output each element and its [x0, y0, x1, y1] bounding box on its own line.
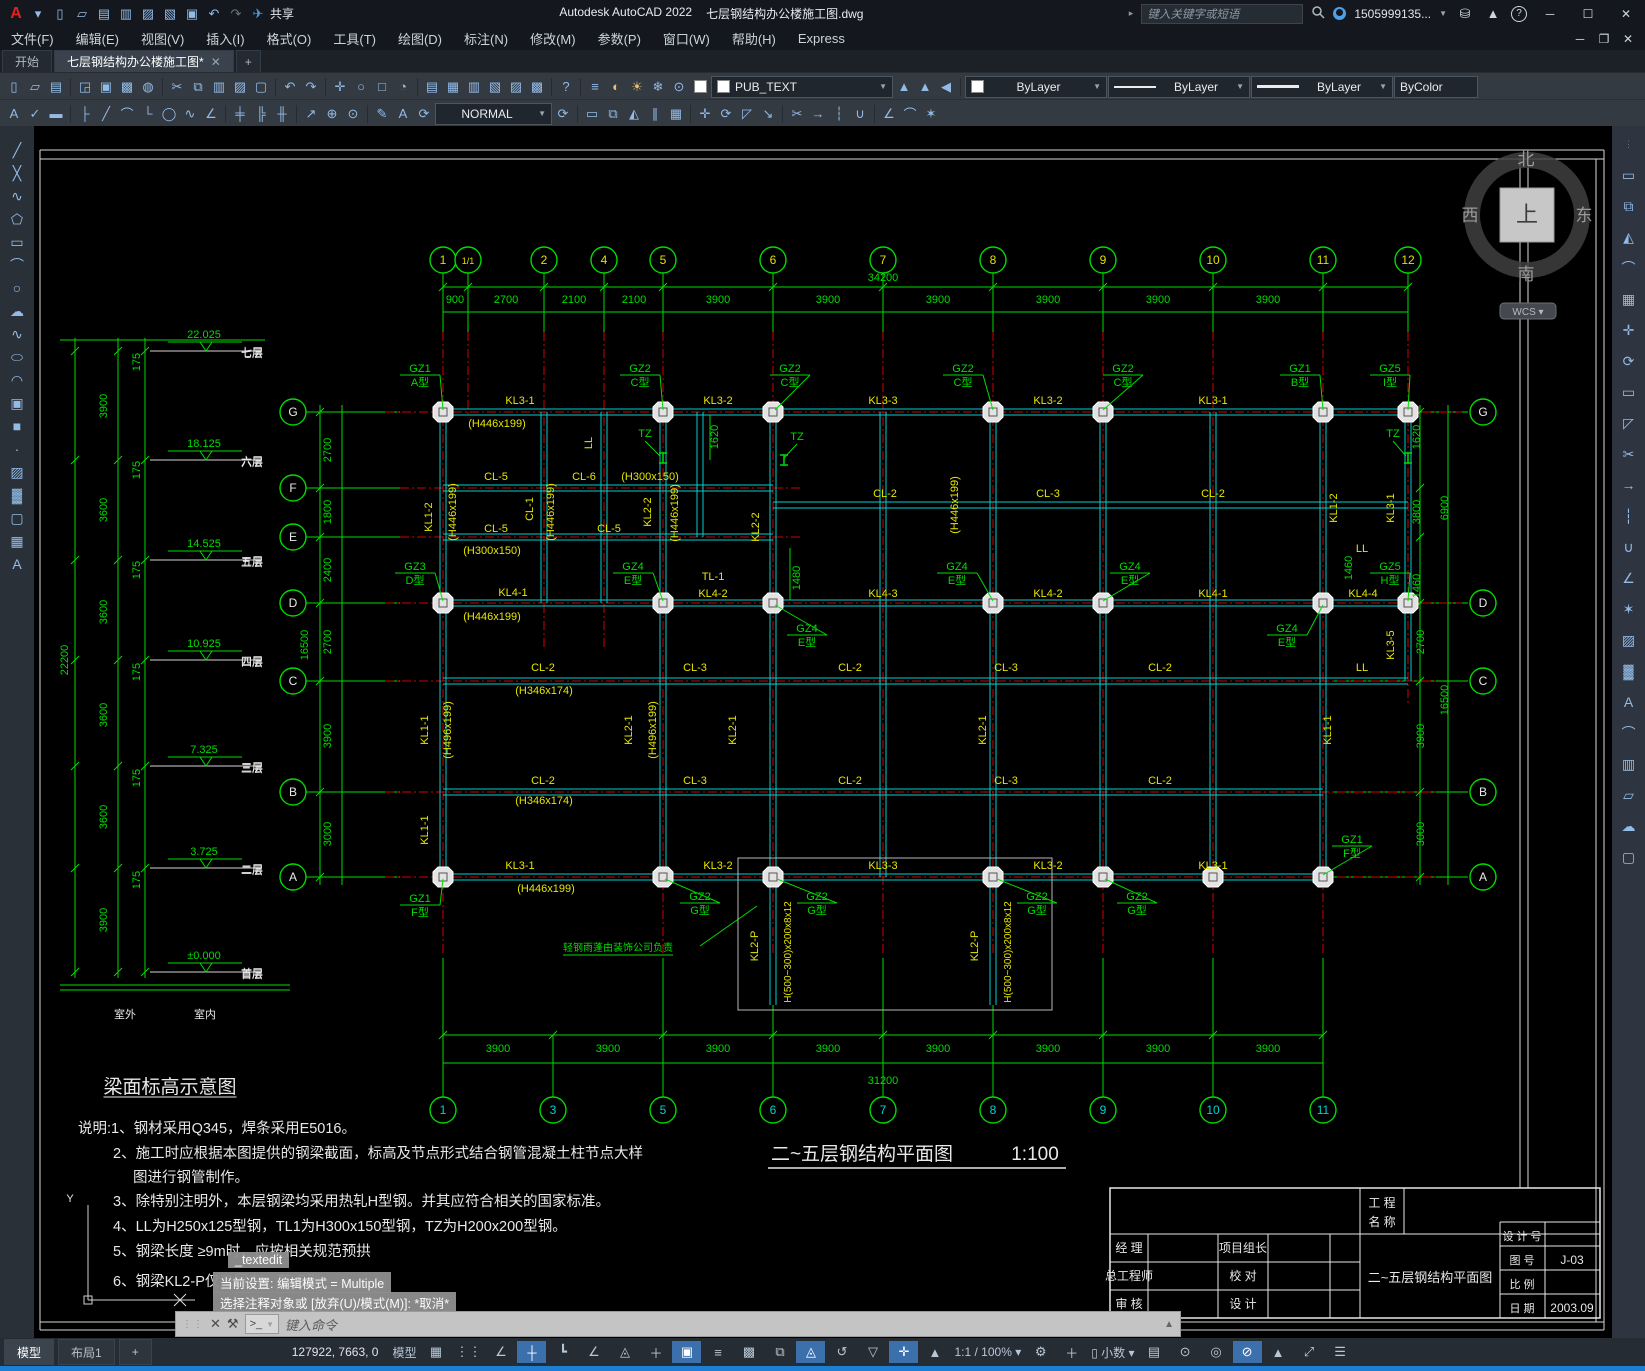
drawing-label: KL3-2 — [703, 860, 732, 872]
drawing-label: 3000 — [1415, 822, 1427, 846]
taskbar-accent — [0, 1366, 1645, 1371]
level-value: ±0.000 — [187, 950, 221, 962]
tb-leader: 项目组长 — [1219, 1241, 1267, 1255]
drawing-label: TZ — [638, 428, 652, 440]
drawing-label: (H300x150) — [463, 545, 520, 557]
drawing-label: (H446x199) — [545, 483, 557, 540]
status-performance-icon[interactable]: ▲ — [1264, 1341, 1293, 1363]
status-ducs-icon[interactable]: ↺ — [827, 1341, 856, 1363]
column-marker — [983, 867, 1003, 887]
column-tag: GZ4 — [622, 561, 643, 573]
column-marker — [433, 593, 453, 613]
column-tag: GZ5 — [1379, 363, 1400, 375]
level-value: 22.025 — [187, 329, 221, 341]
grid-bubble-label: 3 — [550, 1103, 557, 1117]
grid-bubble-label: 1 — [440, 1103, 447, 1117]
drawing-label: KL2-2 — [642, 497, 654, 526]
grid-bubble-label: 4 — [601, 253, 608, 267]
command-prompt-text: 选择注释对象或 [放弃(U)/模式(M)]: *取消* — [213, 1292, 456, 1313]
grid-bubble-label: 10 — [1206, 1103, 1220, 1117]
column-marker — [1093, 593, 1113, 613]
column-tag-type: F型 — [411, 905, 429, 919]
drawing-label: 3900 — [816, 294, 840, 306]
grid-bubble-label: 7 — [880, 1103, 887, 1117]
drawing-label: 1:100 — [1011, 1144, 1059, 1165]
status-dynamic-input-icon[interactable]: ┼ — [517, 1341, 546, 1363]
drawing-label: (H446x199) — [517, 883, 574, 895]
column-tag: GZ4 — [946, 561, 967, 573]
drawing-label: 3900 — [926, 1043, 950, 1055]
level-value: 7.325 — [190, 744, 218, 756]
drawing-label: KL4-4 — [1348, 588, 1377, 600]
column-tag-type: D型 — [406, 573, 425, 587]
units-button[interactable]: ▯ 小数 ▾ — [1088, 1341, 1137, 1363]
drawing-label: 二层 — [241, 864, 263, 877]
column-tag-type: A型 — [411, 375, 429, 389]
tb-design: 设 计 — [1229, 1297, 1256, 1311]
drawing-label: 1620 — [1411, 425, 1423, 449]
drawing-label: 3900 — [486, 1043, 510, 1055]
drawing-label: 2700 — [322, 438, 334, 462]
column-tag-type: G型 — [690, 903, 710, 917]
status-transparency-icon[interactable]: ▩ — [734, 1341, 763, 1363]
level-value: 10.925 — [187, 638, 221, 650]
drawing-label: 2700 — [1415, 630, 1427, 654]
command-history-button[interactable]: >_ ▼ — [245, 1314, 279, 1334]
grid-bubble-label: E — [289, 530, 297, 544]
drawing-label: LL — [1356, 543, 1368, 555]
viewcube-south: 南 — [1518, 265, 1535, 284]
drawing-label: KL3-1 — [1385, 493, 1397, 522]
drawing-label: KL3-3 — [868, 860, 897, 872]
drawing-label: 六层 — [241, 456, 263, 469]
drawing-label: KL3-3 — [868, 395, 897, 407]
grid-bubble-label: 2 — [541, 253, 548, 267]
tb-design-no: 设 计 号 — [1502, 1230, 1541, 1243]
grid-bubble-label: B — [289, 785, 297, 799]
column-tag-type: B型 — [1291, 375, 1309, 389]
status-isolate-icon[interactable]: ◎ — [1202, 1341, 1231, 1363]
drawing-label: 3900 — [926, 294, 950, 306]
grid-bubble-label: D — [1479, 596, 1488, 610]
drawing-label: 1480 — [791, 566, 803, 590]
grid-bubble-label: 6 — [770, 1103, 777, 1117]
column-marker — [1093, 402, 1113, 422]
drawing-label: 3900 — [98, 908, 110, 932]
status-snap-icon[interactable]: ⋮⋮ — [452, 1341, 484, 1363]
column-tag-type: C型 — [631, 375, 650, 389]
coordinates-readout: 127922, 7663, 0 — [292, 1345, 379, 1359]
column-tag-type: G型 — [807, 903, 827, 917]
status-customize-icon[interactable]: ☰ — [1326, 1341, 1355, 1363]
drawing-label: 3600 — [98, 600, 110, 624]
drawing-canvas[interactable]: GZ1A型GZ2C型GZ2C型GZ2C型GZ2C型GZ1B型GZ5I型GZ3D型… — [0, 0, 1645, 1371]
drawing-label: CL-3 — [683, 662, 707, 674]
grid-bubble-label: A — [1479, 870, 1487, 884]
status-ortho-icon[interactable]: ┗ — [548, 1341, 577, 1363]
column-tag: GZ2 — [952, 363, 973, 375]
drawing-label: KL2-1 — [623, 715, 635, 744]
grid-bubble-label: 11 — [1317, 253, 1330, 267]
drawing-label: (H496x199) — [442, 701, 454, 758]
autocad-window: GZ1A型GZ2C型GZ2C型GZ2C型GZ2C型GZ1B型GZ5I型GZ3D型… — [0, 0, 1645, 1371]
status-tab-layout1[interactable]: 布局1 — [58, 1339, 115, 1365]
column-marker — [653, 593, 673, 613]
drawing-label: CL-5 — [484, 471, 508, 483]
drawing-label: 175 — [131, 769, 143, 787]
level-value: 18.125 — [187, 438, 221, 450]
drawing-label: 1800 — [322, 500, 334, 524]
drawing-label: 说明:1、钢材采用Q345，焊条采用E5016。 — [78, 1120, 356, 1137]
column-tag: GZ2 — [1026, 891, 1047, 903]
status-hardware-icon[interactable]: ⊘ — [1233, 1341, 1262, 1363]
tb-date: 日 期 — [1509, 1302, 1534, 1315]
grid-bubble-label: G — [288, 405, 297, 419]
drawing-label: 轻钢雨蓬由装饰公司负责 — [563, 941, 673, 954]
tb-proof: 校 对 — [1229, 1268, 1256, 1283]
grid-bubble-label: 1 — [440, 253, 447, 267]
drawing-label: KL3-1 — [1198, 395, 1227, 407]
drawing-label: KL3-2 — [703, 395, 732, 407]
column-tag-type: G型 — [1127, 903, 1147, 917]
tb-drawing-name: 二~五层钢结构平面图 — [1368, 1270, 1493, 1285]
status-iso-icon[interactable]: ◬ — [610, 1341, 639, 1363]
grid-bubble-label: 11 — [1317, 1103, 1330, 1117]
tooltip-current-setting: 当前设置: 编辑模式 = Multiple — [213, 1272, 391, 1293]
status-quick-properties-icon[interactable]: ▤ — [1140, 1341, 1169, 1363]
drawing-label: 31200 — [868, 1075, 899, 1087]
grid-bubble-label: 9 — [1100, 1103, 1107, 1117]
drawing-label: (H346x174) — [515, 685, 572, 697]
grid-bubble-label: 10 — [1206, 253, 1220, 267]
tb-manager: 经 理 — [1115, 1241, 1142, 1255]
column-tag: GZ5 — [1379, 561, 1400, 573]
level-value: 3.725 — [190, 846, 218, 858]
drawing-label: 三层 — [241, 762, 263, 775]
grid-bubble-label: C — [1479, 674, 1488, 688]
drawing-label: KL4-2 — [698, 588, 727, 600]
status-lineweight-icon[interactable]: ≡ — [703, 1341, 732, 1363]
drawing-label: 3900 — [816, 1043, 840, 1055]
column-marker — [1093, 867, 1113, 887]
drawing-label: 34200 — [868, 272, 899, 284]
drawing-label: 图进行钢管制作。 — [133, 1169, 249, 1186]
status-tab-model[interactable]: 模型 — [4, 1339, 54, 1365]
column-tag-type: E型 — [798, 635, 816, 649]
drawing-label: CL-2 — [838, 775, 862, 787]
drawing-label: KL2-2 — [750, 512, 762, 541]
level-value: 14.525 — [187, 538, 221, 550]
status-grid-icon[interactable]: ▦ — [421, 1341, 450, 1363]
drawing-label: CL-3 — [994, 775, 1018, 787]
drawing-label: 2700 — [494, 294, 518, 306]
command-line[interactable]: ⋮⋮ ✕ ⚒ >_ ▼ 键入命令 ▲ — [175, 1311, 1181, 1337]
grid-bubble-label: A — [289, 870, 297, 884]
status-otrack-icon[interactable]: ＋ — [641, 1341, 670, 1363]
drawing-label: 二~五层钢结构平面图 — [771, 1143, 953, 1165]
column-tag: GZ1 — [409, 363, 430, 375]
drawing-label: CL-6 — [572, 471, 596, 483]
drawing-label: 900 — [446, 294, 464, 306]
drawing-label: 3600 — [98, 498, 110, 522]
grid-bubble-label: 1/1 — [462, 256, 475, 266]
drawing-label: 室外 — [114, 1007, 136, 1021]
drawing-label: TL-1 — [702, 571, 725, 583]
drawing-label: 16500 — [1439, 685, 1451, 716]
drawing-label: H(500~300)x200x8x12 — [1003, 901, 1014, 1003]
viewcube-top: 上 — [1516, 202, 1538, 227]
command-grip-icon[interactable]: ⋮⋮ — [182, 1319, 204, 1330]
drawing-label: 室内 — [194, 1007, 216, 1021]
drawing-label: 梁面标高示意图 — [103, 1076, 236, 1098]
drawing-label: (H446x199) — [447, 483, 459, 540]
drawing-label: CL-5 — [484, 523, 508, 535]
drawing-label: 22200 — [59, 645, 71, 676]
grid-bubble-label: 9 — [1100, 253, 1107, 267]
column-tag: GZ1 — [1341, 834, 1362, 846]
grid-bubble-label: 5 — [660, 1103, 667, 1117]
drawing-label: CL-3 — [683, 775, 707, 787]
drawing-label: H(500~300)x200x8x12 — [783, 901, 794, 1003]
drawing-label: 1620 — [709, 425, 721, 449]
grid-bubble-label: 12 — [1401, 253, 1415, 267]
drawing-label: KL3-1 — [505, 860, 534, 872]
drawing-label: KL4-2 — [1033, 588, 1062, 600]
tooltip-textedit: _textedit — [228, 1252, 289, 1268]
status-annotation-icon[interactable]: ▲ — [920, 1341, 949, 1363]
column-marker — [433, 867, 453, 887]
model-space-button[interactable]: 模型 — [389, 1341, 419, 1363]
tb-sheet-no: 图 号 — [1509, 1254, 1534, 1267]
drawing-label: 3900 — [1256, 1043, 1280, 1055]
drawing-label: 2400 — [322, 558, 334, 582]
drawing-label: KL3-1 — [505, 395, 534, 407]
drawing-label: CL-2 — [1148, 775, 1172, 787]
drawing-label: (H496x199) — [647, 701, 659, 758]
column-tag-type: I型 — [1383, 375, 1397, 389]
drawing-label: KL4-1 — [1198, 588, 1227, 600]
drawing-label: 3800 — [1411, 500, 1423, 524]
status-cycling-icon[interactable]: ⧉ — [765, 1341, 794, 1363]
grid-bubble-label: 6 — [770, 253, 777, 267]
tb-scale: 比 例 — [1509, 1277, 1534, 1291]
drawing-label: 1460 — [1343, 556, 1355, 580]
status-infer-icon[interactable]: ∠ — [486, 1341, 515, 1363]
drawing-label: 五层 — [241, 556, 263, 569]
grid-bubble-label: 5 — [660, 253, 667, 267]
viewcube-east: 东 — [1576, 206, 1593, 225]
drawing-label: KL2-P — [749, 931, 761, 962]
grid-bubble-label: D — [289, 596, 298, 610]
drawing-label: CL-2 — [873, 488, 897, 500]
grid-bubble-label: G — [1478, 405, 1487, 419]
drawing-label: KL2-P — [969, 931, 981, 962]
drawing-label: 3900 — [706, 1043, 730, 1055]
status-plus-icon[interactable]: ＋ — [1057, 1341, 1086, 1363]
drawing-label: KL4-3 — [868, 588, 897, 600]
status-gizmo-icon[interactable]: ✛ — [889, 1341, 918, 1363]
grid-bubble-label: C — [289, 674, 298, 688]
column-tag: GZ4 — [796, 623, 817, 635]
column-tag-type: C型 — [954, 375, 973, 389]
status-filter-icon[interactable]: ▽ — [858, 1341, 887, 1363]
column-marker — [983, 593, 1003, 613]
drawing-label: CL-2 — [1201, 488, 1225, 500]
drawing-label: 175 — [131, 871, 143, 889]
column-tag: GZ1 — [409, 893, 430, 905]
drawing-label: 首层 — [241, 967, 263, 981]
drawing-label: 七层 — [241, 347, 263, 360]
tb-project-label: 名 称 — [1368, 1214, 1395, 1229]
command-input[interactable]: 键入命令 — [285, 1315, 337, 1334]
drawing-label: LL — [1356, 662, 1368, 674]
drawing-label: CL-5 — [597, 523, 621, 535]
column-tag: GZ1 — [1289, 363, 1310, 375]
tb-date-value: 2003.09 — [1550, 1301, 1594, 1315]
grid-bubble-label: 8 — [990, 1103, 997, 1117]
drawing-label: 3600 — [98, 703, 110, 727]
column-marker — [763, 867, 783, 887]
command-expand-icon[interactable]: ▲ — [1164, 1319, 1174, 1330]
column-tag-type: C型 — [781, 375, 800, 389]
wcs-label: WCS ▾ — [1512, 307, 1543, 318]
column-tag: GZ2 — [806, 891, 827, 903]
drawing-label: (H446x199) — [463, 611, 520, 623]
drawing-label: CL-3 — [1036, 488, 1060, 500]
grid-bubble-label: B — [1479, 785, 1487, 799]
drawing-label: 3900 — [1036, 1043, 1060, 1055]
status-tab-new[interactable]: + — [119, 1339, 152, 1365]
drawing-label: CL-2 — [531, 662, 555, 674]
drawing-label: 2100 — [622, 294, 646, 306]
column-tag: GZ4 — [1119, 561, 1140, 573]
drawing-label: (H346x174) — [515, 795, 572, 807]
drawing-label: CL-2 — [531, 775, 555, 787]
status-polar-icon[interactable]: ∠ — [579, 1341, 608, 1363]
status-gear-icon[interactable]: ⚙ — [1026, 1341, 1055, 1363]
drawing-label: (H446x199) — [669, 484, 681, 541]
drawing-label: 4、LL为H250x125型钢，TL1为H300x150型钢，TZ为H200x2… — [113, 1218, 567, 1235]
drawing-label: 3900 — [1256, 294, 1280, 306]
status-osnap-icon[interactable]: ▣ — [672, 1341, 701, 1363]
drawing-label: KL1-2 — [423, 502, 435, 531]
drawing-label: 四层 — [241, 656, 263, 669]
tb-sheet-no-value: J-03 — [1560, 1253, 1584, 1267]
drawing-label: KL2-1 — [977, 715, 989, 744]
drawing-label: 3000 — [322, 822, 334, 846]
column-tag-type: E型 — [1278, 635, 1296, 649]
column-tag-type: E型 — [624, 573, 642, 587]
drawing-label: 2100 — [562, 294, 586, 306]
column-tag-type: H型 — [1381, 573, 1400, 587]
grid-bubble-label: 8 — [990, 253, 997, 267]
column-tag: GZ3 — [404, 561, 425, 573]
drawing-label: 3900 — [1415, 724, 1427, 748]
drawing-label: 16500 — [299, 630, 311, 661]
drawing-label: 6900 — [1439, 496, 1451, 520]
drawing-label: 3900 — [322, 724, 334, 748]
drawing-label: KL1-1 — [419, 815, 431, 844]
command-wrench-icon[interactable]: ⚒ — [227, 1316, 239, 1332]
column-marker — [1313, 867, 1333, 887]
drawing-label: KL3-2 — [1033, 860, 1062, 872]
drawing-label: CL-3 — [994, 662, 1018, 674]
drawing-label: 2700 — [322, 630, 334, 654]
tb-chief: 总工程师 — [1105, 1268, 1153, 1283]
drawing-label: 1460 — [1411, 574, 1423, 598]
status-clean-screen-icon[interactable]: ⤢ — [1295, 1341, 1324, 1363]
drawing-label: KL3-2 — [1033, 395, 1062, 407]
grid-bubble-label: F — [289, 481, 296, 495]
drawing-label: KL3-1 — [1198, 860, 1227, 872]
drawing-label: KL2-1 — [727, 715, 739, 744]
tb-review: 审 核 — [1115, 1296, 1142, 1311]
drawing-label: 3600 — [98, 805, 110, 829]
column-tag-type: E型 — [948, 573, 966, 587]
column-tag: GZ4 — [1276, 623, 1297, 635]
drawing-label: KL1-2 — [1328, 493, 1340, 522]
viewcube-north: 北 — [1518, 150, 1535, 169]
drawing-label: 175 — [131, 561, 143, 579]
drawing-label: LL — [583, 437, 595, 449]
column-tag: GZ2 — [779, 363, 800, 375]
command-close-icon[interactable]: ✕ — [210, 1316, 221, 1332]
drawing-label: 3900 — [1146, 1043, 1170, 1055]
drawing-label: KL3-5 — [1385, 630, 1397, 659]
drawing-label: 3900 — [98, 394, 110, 418]
drawing-label: 3900 — [1036, 294, 1060, 306]
drawing-label: Y — [66, 1193, 74, 1205]
drawing-label: TZ — [1386, 428, 1400, 440]
drawing-label: (H300x150) — [621, 471, 678, 483]
drawing-label: 3900 — [1146, 294, 1170, 306]
drawing-label: 2、施工时应根据本图提供的钢梁截面，标高及节点形式结合钢管混凝土柱节点大样 — [113, 1144, 643, 1162]
column-marker — [653, 867, 673, 887]
status-3dosnap-icon[interactable]: ◬ — [796, 1341, 825, 1363]
drawing-label: 175 — [131, 663, 143, 681]
column-marker — [1313, 593, 1333, 613]
drawing-label: KL1-1 — [419, 715, 431, 744]
drawing-label: 175 — [131, 461, 143, 479]
drawing-label: TZ — [790, 431, 804, 443]
viewcube-west: 西 — [1462, 206, 1479, 225]
column-tag-type: G型 — [1027, 903, 1047, 917]
drawing-label: (H446x199) — [949, 476, 961, 533]
status-lock-ui-icon[interactable]: ⊙ — [1171, 1341, 1200, 1363]
drawing-label: CL-2 — [1148, 662, 1172, 674]
drawing-label: 3900 — [596, 1043, 620, 1055]
drawing-label: (H446x199) — [468, 418, 525, 430]
annotation-scale-button[interactable]: 1:1 / 100% ▾ — [951, 1341, 1024, 1363]
column-marker — [763, 593, 783, 613]
drawing-label: KL1-1 — [1322, 715, 1334, 744]
drawing-label: CL-2 — [838, 662, 862, 674]
drawing-label: KL4-1 — [498, 587, 527, 599]
drawing-label: 3、除特别注明外，本层钢梁均采用热轧H型钢。并其应符合相关的国家标准。 — [113, 1192, 610, 1210]
column-tag: GZ2 — [629, 363, 650, 375]
drawing-label: 3900 — [706, 294, 730, 306]
column-marker — [983, 402, 1003, 422]
drawing-label: 175 — [131, 353, 143, 371]
drawing-label: CL-1 — [524, 497, 536, 521]
tb-project-label: 工 程 — [1368, 1195, 1395, 1210]
status-bar: 模型布局1+127922, 7663, 0模型▦⋮⋮∠┼┗∠◬＋▣≡▩⧉◬↺▽✛… — [0, 1338, 1645, 1366]
column-tag: GZ2 — [1112, 363, 1133, 375]
grid-bubble-label: 7 — [880, 253, 887, 267]
